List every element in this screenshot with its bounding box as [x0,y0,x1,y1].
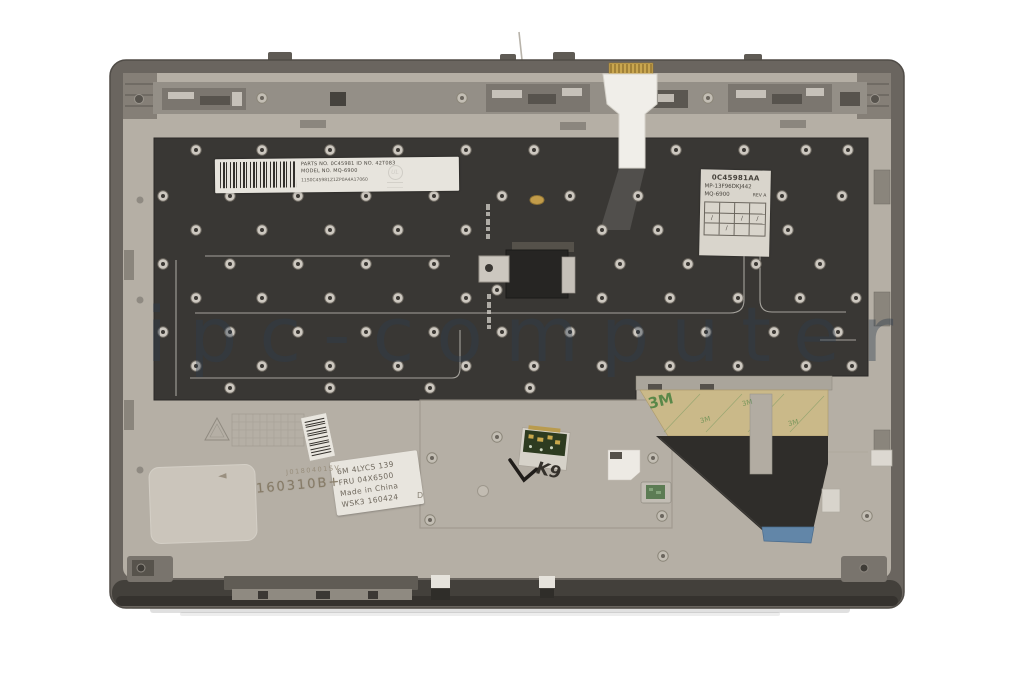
spec-cell [735,203,750,214]
spec-cell: ∕ [735,214,750,225]
ul-sub-text [387,182,403,188]
stamp-letter-d: D [417,491,423,500]
green-window-sticker [641,482,671,503]
spec-cell: ∕ [720,224,735,235]
spec-cell: ∕ [705,213,720,224]
spec-cell [720,213,735,224]
spec-type: MQ-6900 [704,191,729,198]
spec-cell [720,203,735,214]
spec-cell [750,203,765,214]
spec-cell: ∕ [750,214,765,225]
spec-cell [705,224,720,235]
spec-model: MP-13F96DKJ442 [704,183,766,190]
barcode-label-line3: 11S0C45981Z1ZP0A4A17060 [301,177,454,185]
ul-certification-mark: UL [385,165,405,188]
shop-watermark: ipc-computer [146,290,946,379]
stamp-arrow: ◄ [218,469,227,483]
product-photo: PARTS NO. 0C45981 ID NO. 42T083 MODEL NO… [0,0,1024,680]
spec-check-table: ∕ ∕ ∕ ∕ [704,201,767,236]
spec-cell [750,225,765,236]
barcode-label-line2: MODEL NO. MQ-6900 [301,167,454,176]
blank-label-patch [149,464,258,544]
spec-label: 0C45981AA MP-13F96DKJ442 MQ-6900 REV A ∕… [699,169,771,256]
top-edge-tabs [268,32,762,64]
ul-logo: UL [388,165,403,180]
spec-part-number: 0C45981AA [705,173,767,182]
barcode-stripes [220,161,296,188]
parts-barcode-label: PARTS NO. 0C45981 ID NO. 42T083 MODEL NO… [215,157,459,194]
spec-rev: REV A [753,193,767,198]
spec-cell [705,202,720,213]
spec-cell [735,224,750,235]
